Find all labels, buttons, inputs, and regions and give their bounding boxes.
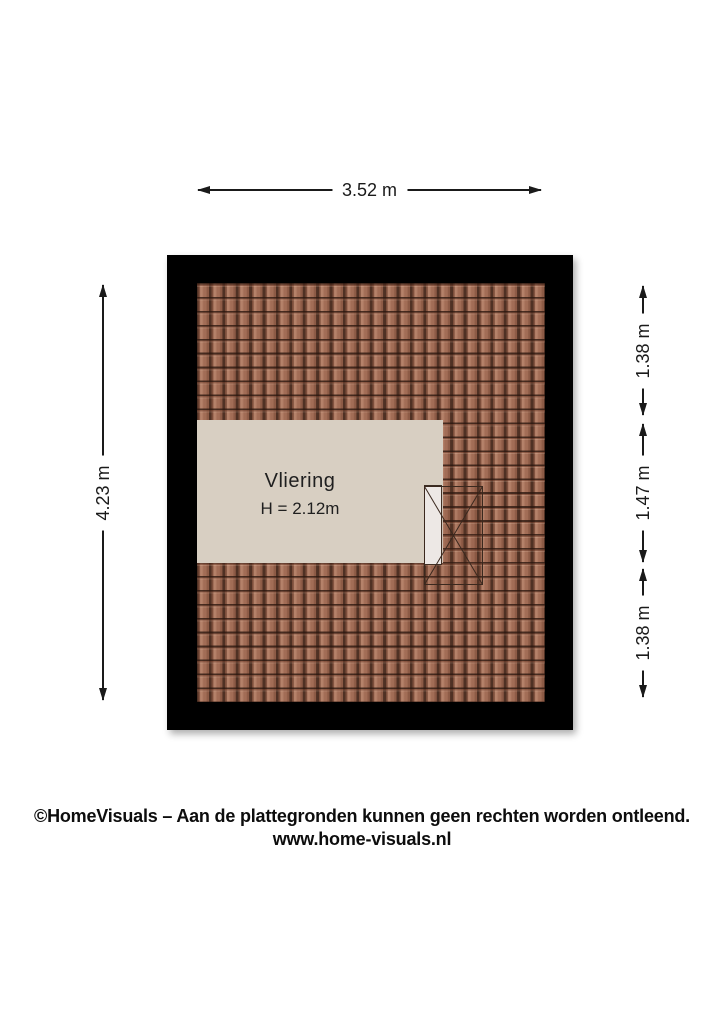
dimension-label-right-upper: 1.38 m — [632, 313, 654, 388]
room-height-label: H = 2.12m — [197, 499, 403, 518]
arrow-up-icon — [99, 284, 107, 297]
website-text: www.home-visuals.nl — [0, 828, 724, 851]
floorplan-page: 3.52 m 4.23 m Vliering H = 2.12m — [0, 0, 724, 1024]
arrow-up-icon — [639, 568, 647, 581]
dimension-label-height: 4.23 m — [92, 455, 114, 530]
dimension-right-lower: 1.38 m — [635, 569, 651, 697]
dimension-left-height: 4.23 m — [95, 285, 111, 700]
dimension-right-middle: 1.47 m — [635, 424, 651, 562]
dimension-label-width: 3.52 m — [332, 179, 407, 201]
arrow-up-icon — [639, 423, 647, 436]
arrow-up-icon — [639, 285, 647, 298]
room-text-block: Vliering H = 2.12m — [197, 470, 403, 518]
floorplan-canvas: Vliering H = 2.12m — [167, 255, 573, 730]
dimension-label-right-middle: 1.47 m — [632, 455, 654, 530]
dimension-label-right-lower: 1.38 m — [632, 595, 654, 670]
arrow-down-icon — [639, 550, 647, 563]
roof-window-cross-icon — [424, 486, 483, 585]
room-name-label: Vliering — [197, 470, 403, 492]
copyright-text: ©HomeVisuals – Aan de plattegronden kunn… — [0, 805, 724, 828]
roof-tiles: Vliering H = 2.12m — [197, 283, 545, 702]
footer: ©HomeVisuals – Aan de plattegronden kunn… — [0, 805, 724, 851]
room-vliering: Vliering H = 2.12m — [197, 420, 443, 563]
arrow-down-icon — [639, 685, 647, 698]
dimension-top-width: 3.52 m — [198, 182, 541, 198]
arrow-right-icon — [529, 186, 542, 194]
arrow-down-icon — [99, 688, 107, 701]
arrow-down-icon — [639, 403, 647, 416]
dimension-right-upper: 1.38 m — [635, 286, 651, 415]
arrow-left-icon — [197, 186, 210, 194]
